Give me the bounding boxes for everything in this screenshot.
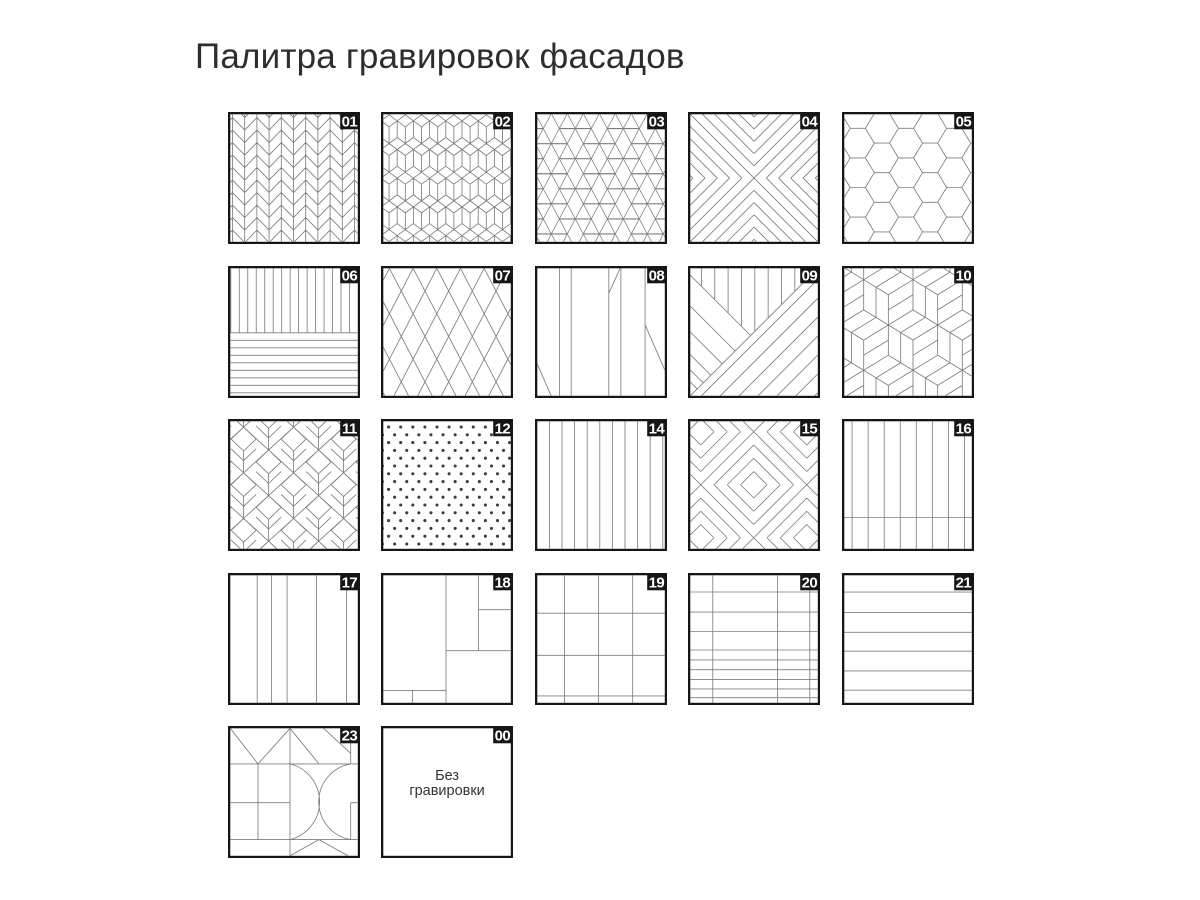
- svg-text:07: 07: [495, 267, 511, 284]
- svg-text:10: 10: [955, 267, 971, 284]
- svg-text:08: 08: [648, 267, 664, 284]
- svg-text:21: 21: [955, 574, 971, 591]
- svg-text:01: 01: [341, 114, 357, 131]
- svg-text:02: 02: [495, 114, 511, 131]
- svg-text:18: 18: [495, 574, 511, 591]
- svg-text:Без: Без: [435, 768, 459, 784]
- svg-text:00: 00: [495, 727, 511, 744]
- svg-text:14: 14: [648, 420, 665, 437]
- svg-text:11: 11: [342, 420, 357, 437]
- svg-text:гравировки: гравировки: [409, 783, 484, 799]
- svg-text:20: 20: [802, 574, 818, 591]
- svg-text:17: 17: [341, 574, 357, 591]
- svg-text:05: 05: [955, 114, 971, 131]
- svg-text:04: 04: [802, 114, 819, 131]
- svg-text:19: 19: [648, 574, 664, 591]
- svg-text:16: 16: [955, 420, 971, 437]
- svg-text:03: 03: [648, 114, 664, 131]
- svg-text:15: 15: [802, 420, 818, 437]
- svg-text:06: 06: [341, 267, 357, 284]
- svg-text:23: 23: [341, 727, 357, 744]
- svg-text:09: 09: [802, 267, 818, 284]
- svg-text:12: 12: [495, 420, 511, 437]
